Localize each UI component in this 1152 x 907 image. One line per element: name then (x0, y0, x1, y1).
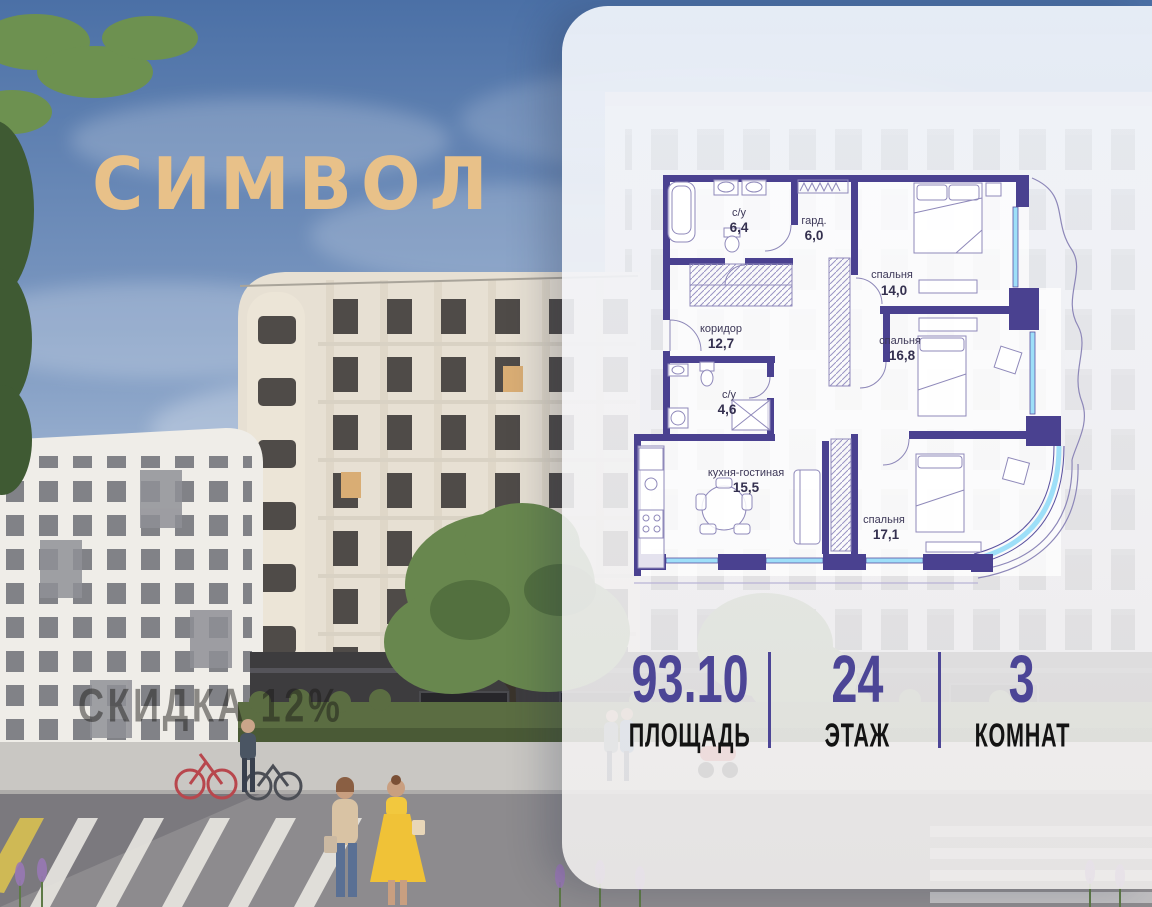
floor-plan: с/у 6,4 гард. 6,0 спальня 14,0 коридор 1… (626, 158, 1092, 604)
room-label: гард. (801, 215, 826, 227)
room-area: 6,0 (805, 228, 824, 243)
discount-watermark: СКИДКА 12% (78, 680, 344, 733)
building-left (0, 428, 263, 792)
stat-floor-label: ЭТАЖ (824, 720, 889, 753)
room-label: спальня (863, 514, 905, 526)
room-label: спальня (879, 335, 921, 347)
brand-logo: СИМВОЛ (92, 148, 497, 220)
room-area: 12,7 (708, 336, 734, 351)
room-area: 17,1 (873, 527, 900, 542)
stat-area-value: 93.10 (631, 646, 748, 713)
stat-rooms-label: КОМНАТ (974, 720, 1070, 753)
listing-screenshot: СИМВОЛ СКИДКА 12% (0, 0, 1152, 907)
apartment-card[interactable]: с/у 6,4 гард. 6,0 спальня 14,0 коридор 1… (562, 6, 1152, 889)
room-label: кухня-гостиная (708, 467, 784, 479)
room-label: с/у (732, 207, 747, 219)
room-area: 16,8 (889, 348, 916, 363)
stat-floor-value: 24 (831, 646, 883, 713)
room-area: 4,6 (718, 402, 737, 417)
room-area: 15,5 (733, 480, 760, 495)
room-area: 14,0 (881, 283, 907, 298)
room-label: с/у (722, 389, 737, 401)
room-label: коридор (700, 323, 742, 335)
room-area: 6,4 (730, 220, 749, 235)
stat-area-label: ПЛОЩАДЬ (629, 720, 751, 753)
stat-rooms-value: 3 (1009, 646, 1035, 713)
stat-rooms: 3 КОМНАТ (912, 646, 1132, 750)
room-label: спальня (871, 269, 913, 281)
